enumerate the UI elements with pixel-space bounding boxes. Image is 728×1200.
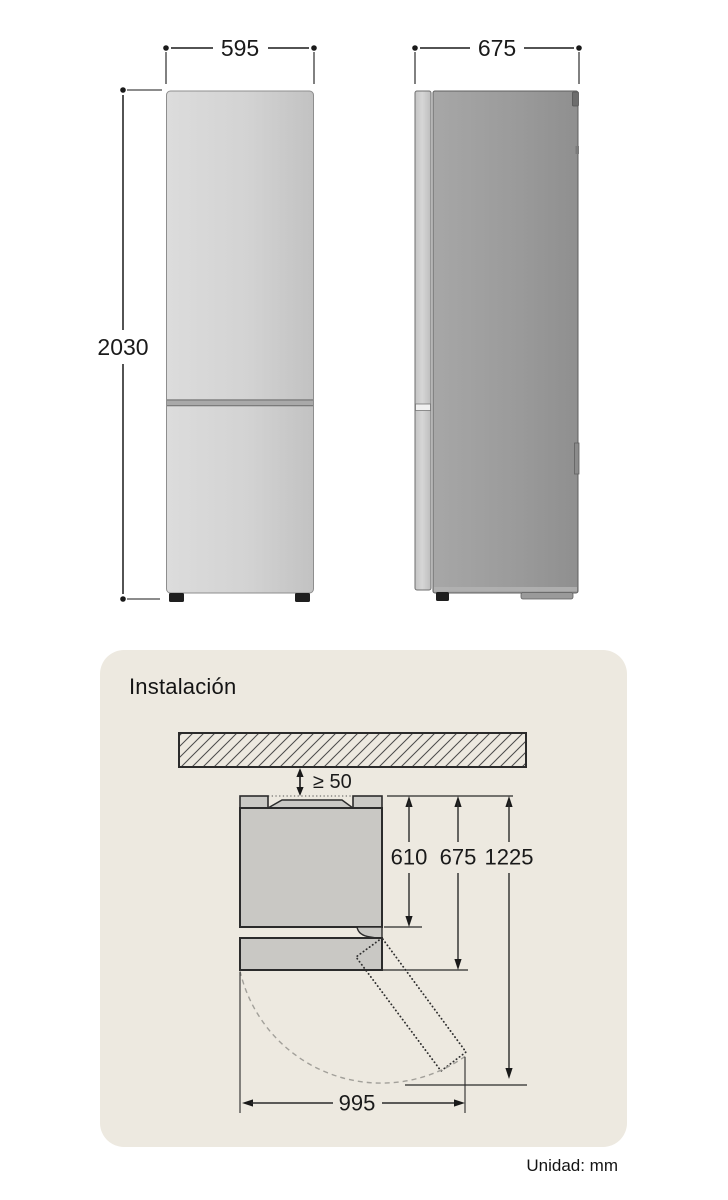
door-swing-arc [240, 971, 467, 1083]
dim-dot [576, 45, 582, 51]
side-edge-notch [576, 146, 580, 154]
top-hinge-cover [573, 92, 579, 106]
dim-dot [412, 45, 418, 51]
fridge-top-view [240, 796, 382, 970]
side-door-gap [416, 404, 431, 411]
fridge-front-view [167, 91, 314, 602]
depth-dimensions [383, 796, 527, 1085]
dim-dot [120, 87, 126, 93]
right-hinge-tab [353, 796, 382, 808]
dim-dot [163, 45, 169, 51]
cabinet-depth-label: 610 [391, 845, 428, 870]
side-cabinet-body [433, 91, 578, 593]
fridge-front-body [167, 91, 314, 593]
rear-roller [521, 593, 573, 600]
total-depth-label: 675 [440, 845, 477, 870]
middle-hinge-cover [575, 443, 580, 474]
unit-note: Unidad: mm [526, 1156, 618, 1176]
installation-diagram: ≥ 50 [100, 650, 627, 1147]
product-dimension-page: 595 2030 675 [0, 0, 728, 1200]
front-left-foot [169, 593, 184, 602]
fridge-side-view [415, 91, 579, 601]
dim-dot [311, 45, 317, 51]
side-door-panel [415, 91, 431, 590]
cabinet-outline [240, 808, 382, 927]
open-depth-label: 1225 [485, 845, 534, 870]
door-hinge-detail [357, 927, 382, 938]
base-strip [434, 587, 577, 592]
front-right-foot [295, 593, 310, 602]
front-width-label: 595 [221, 35, 259, 61]
fridge-dimension-figure: 595 2030 675 [0, 0, 728, 640]
left-hinge-tab [240, 796, 268, 808]
side-depth-label: 675 [478, 35, 516, 61]
installation-card: Instalación ≥ 50 [100, 650, 627, 1147]
top-clearance-label: ≥ 50 [313, 771, 352, 793]
wall-hatched [179, 733, 526, 767]
side-front-foot [436, 592, 449, 601]
front-height-label: 2030 [97, 334, 148, 360]
door-divider-band [167, 401, 313, 406]
open-width-label: 995 [339, 1091, 376, 1116]
dim-dot [120, 596, 126, 602]
top-recess [268, 800, 353, 808]
top-clearance-dimension [296, 768, 303, 796]
